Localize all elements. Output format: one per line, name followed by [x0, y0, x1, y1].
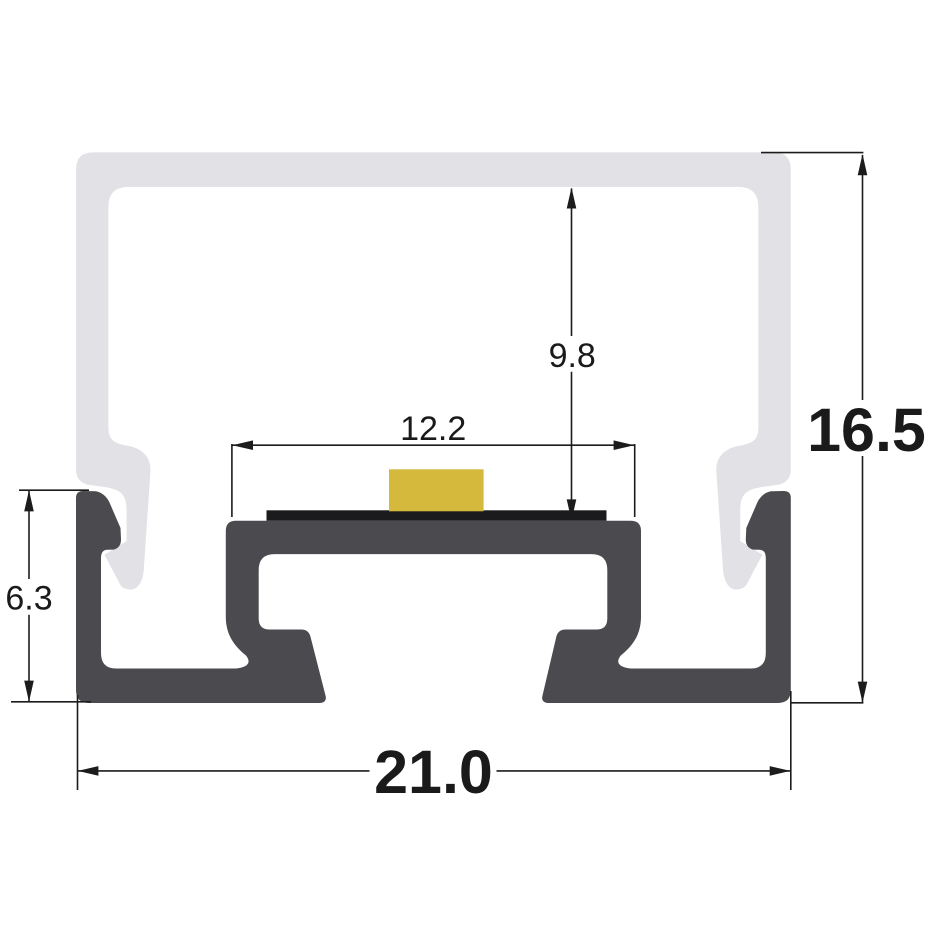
svg-text:21.0: 21.0	[374, 738, 493, 806]
svg-text:6.3: 6.3	[5, 580, 52, 618]
svg-text:9.8: 9.8	[549, 337, 596, 375]
svg-text:16.5: 16.5	[807, 396, 926, 464]
svg-text:12.2: 12.2	[400, 410, 466, 448]
